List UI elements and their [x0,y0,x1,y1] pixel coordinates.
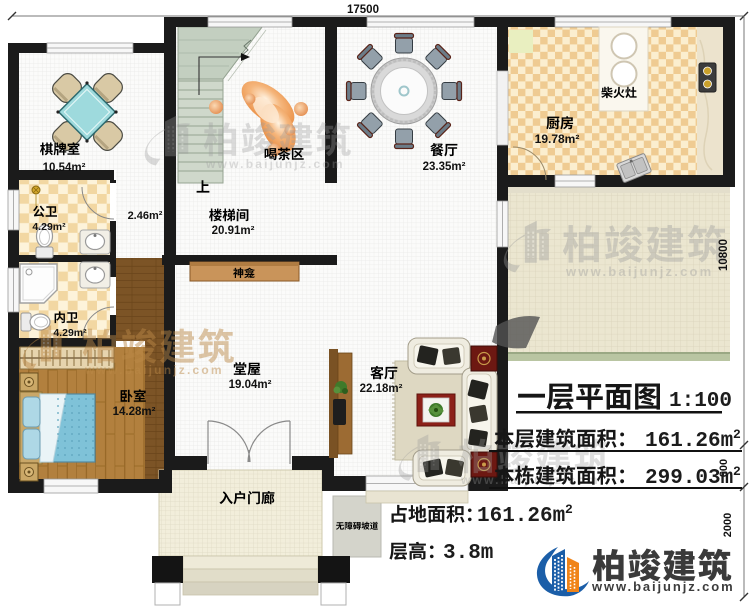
svg-text:14.28m²: 14.28m² [113,406,156,418]
svg-text:1:100: 1:100 [669,390,732,413]
svg-text:10.54m²: 10.54m² [43,162,86,174]
svg-text:www.baijunjz.com: www.baijunjz.com [591,579,735,594]
svg-text:22.18m²: 22.18m² [360,383,403,395]
svg-text:161.26m: 161.26m [477,505,565,528]
svg-text:www.baijunjz.com: www.baijunjz.com [565,264,713,279]
svg-text:10800: 10800 [718,239,730,271]
svg-text:3.8m: 3.8m [443,542,493,565]
svg-text:17500: 17500 [347,4,379,16]
svg-text:299.03m: 299.03m [645,467,733,490]
svg-text:20.91m²: 20.91m² [212,225,255,237]
svg-text:2.46m²: 2.46m² [128,210,163,222]
svg-text:23.35m²: 23.35m² [423,161,466,173]
svg-text:2: 2 [733,464,741,479]
svg-text:19.04m²: 19.04m² [229,379,272,391]
svg-text:161.26m: 161.26m [645,430,733,453]
svg-text:2: 2 [565,502,573,517]
svg-text:4.29m²: 4.29m² [32,221,66,233]
svg-text:www.baijunjz.com: www.baijunjz.com [84,363,224,377]
svg-text:2000: 2000 [722,513,734,537]
svg-text:19.78m²: 19.78m² [535,132,580,146]
svg-text:2: 2 [733,427,741,442]
svg-text:4.29m²: 4.29m² [53,327,87,339]
